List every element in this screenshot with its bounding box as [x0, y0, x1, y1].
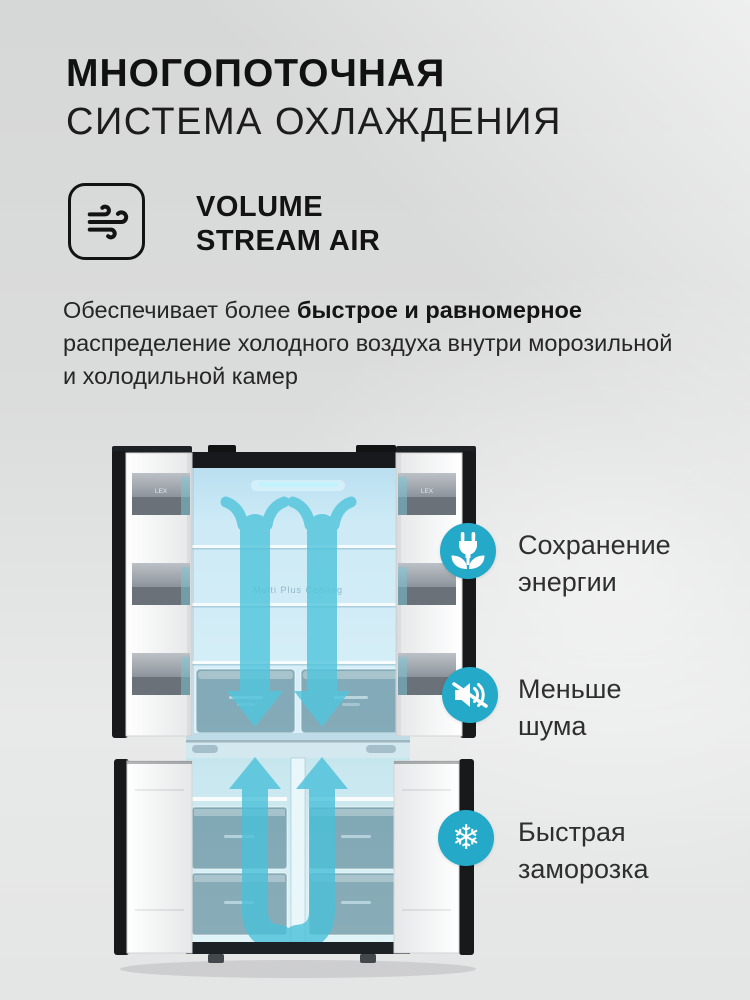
door-bins-left: LEX [132, 473, 190, 695]
brand-logo: LEX [421, 488, 434, 495]
low-noise-badge [442, 667, 498, 723]
freezer-door-bottom-left [114, 759, 192, 955]
door-bins-right: LEX [398, 473, 456, 695]
feature-description: Обеспечивает более быстрое и равномерное… [63, 294, 672, 393]
freezer-compartment [186, 757, 410, 942]
callout-energy-label: Сохранение энергии [518, 527, 671, 601]
compartment-divider [186, 740, 410, 758]
callout-noise-label: Меньше шума [518, 671, 621, 745]
muted-speaker-icon [442, 667, 498, 723]
cabinet-top [180, 445, 416, 470]
page-subtitle: СИСТЕМА ОХЛАЖДЕНИЯ [66, 101, 562, 144]
page-title: МНОГОПОТОЧНАЯ [66, 52, 445, 96]
airflow-badge-label: VOLUME STREAM AIR [196, 190, 380, 258]
fridge-compartment: Multi Plus Cooling [186, 468, 410, 742]
fridge-door-top-left: LEX [112, 446, 192, 738]
snowflake-icon: ❄ [452, 821, 481, 855]
brand-logo: LEX [155, 488, 168, 495]
wind-icon [84, 199, 130, 245]
badge-label-line1: VOLUME [196, 190, 380, 224]
energy-saving-badge [440, 523, 496, 579]
callout-freeze-label: Быстрая заморозка [518, 814, 649, 888]
airflow-badge [68, 183, 145, 260]
description-line3: и холодильной камер [63, 360, 672, 393]
energy-plug-leaf-icon [440, 523, 496, 579]
description-bold: быстрое и равномерное [297, 297, 582, 323]
fast-freeze-badge: ❄ [438, 810, 494, 866]
badge-label-line2: STREAM AIR [196, 224, 380, 258]
fridge-illustration: Multi Plus Cooling [108, 437, 480, 980]
fridge-base [186, 942, 410, 963]
product-infographic: МНОГОПОТОЧНАЯ СИСТЕМА ОХЛАЖДЕНИЯ VOLUME … [0, 0, 750, 1000]
fridge-shadow [120, 960, 476, 978]
description-line1: Обеспечивает более [63, 297, 297, 323]
description-line2: распределение холодного воздуха внутри м… [63, 327, 672, 360]
